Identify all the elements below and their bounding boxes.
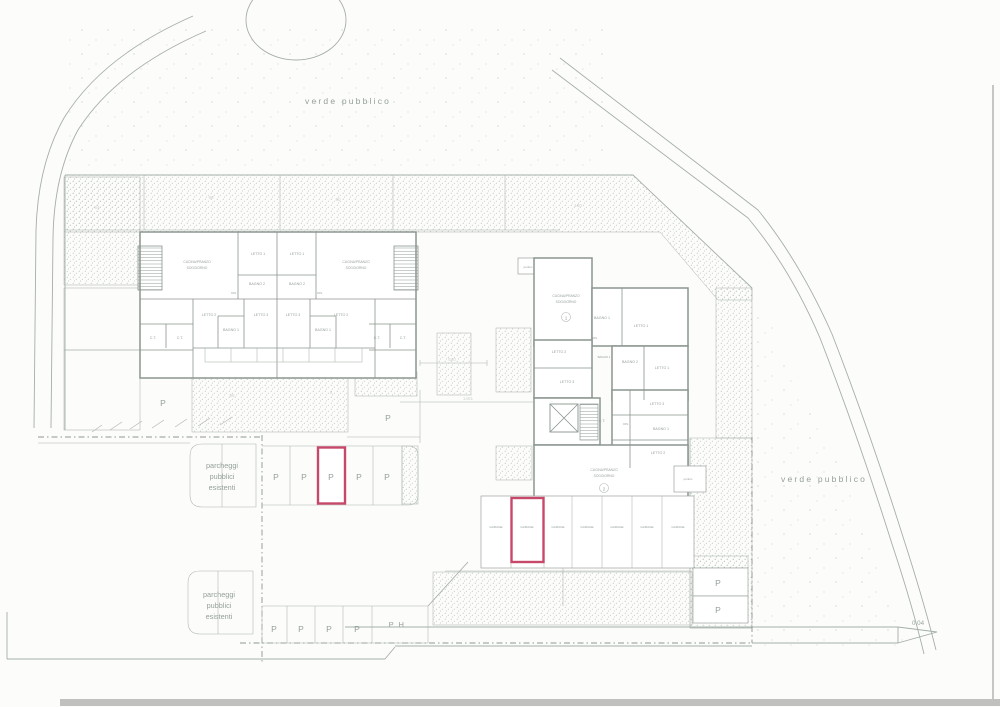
court-west-lower (64, 350, 140, 430)
parking-p-label-highlighted: P (328, 472, 334, 482)
room-label: C.T. (599, 419, 606, 423)
room-label: BAGNO 1 (594, 316, 610, 320)
room-label: SOGGIORNO (346, 266, 367, 270)
parking-p-label: P (715, 605, 721, 615)
public-parking-label-1-line3: esistenti (209, 483, 236, 492)
garden-patch-2 (437, 333, 471, 395)
room-label: LETTO 3 (286, 313, 301, 317)
room-label: DIS. (317, 291, 323, 295)
room-label: CUCINA/PRANZO (342, 260, 370, 264)
faint-number: 64 (94, 205, 100, 210)
garden-sliver-parking (402, 446, 418, 504)
room-label: LETTO 2 (651, 451, 666, 455)
garage-stall-label: GARAGE (640, 525, 653, 529)
garage-stall-label-highlighted: GARAGE (520, 525, 533, 529)
room-label: SOGGIORNO (556, 300, 577, 304)
faint-number: 6 (330, 390, 333, 395)
parking-ph-label: P H (389, 620, 406, 629)
parking-p-label: P (160, 398, 166, 408)
room-label: portico (524, 265, 533, 269)
garage-stall-label: GARAGE (551, 525, 564, 529)
parking-p-label: P (354, 624, 360, 634)
green-area-label-top: verde pubblico (305, 96, 391, 106)
room-label: LETTO 3 (650, 402, 665, 406)
faint-number: 58 (229, 393, 235, 398)
unit-2-number: 2 (603, 487, 606, 492)
parking-p-label: P (715, 578, 721, 588)
room-label: BAGNO 2 (289, 282, 305, 286)
highlighted-garage-stall (512, 498, 544, 562)
room-label: DIS. (592, 336, 598, 340)
parking-p-label: P (271, 624, 277, 634)
garage-stall-label: GARAGE (610, 525, 623, 529)
parking-p-label: P (273, 472, 279, 482)
room-label: BAGNO 1 (598, 355, 611, 359)
stairs-b (580, 404, 598, 440)
room-label: BAGNO 1 (223, 328, 239, 332)
parking-p-label: P (298, 624, 304, 634)
garden-patch-4 (496, 446, 532, 480)
room-label: CUCINA/PRANZO (590, 468, 618, 472)
stairs-east (394, 246, 418, 290)
stairs-west (138, 246, 162, 290)
room-label: LETTO 2 (552, 350, 567, 354)
parking-row-upper (262, 446, 418, 505)
room-label: BAGNO 1 (315, 328, 331, 332)
room-label: SOGGIORNO (187, 266, 208, 270)
parking-p-label: P (301, 472, 307, 482)
garage-stall-label: GARAGE (580, 525, 593, 529)
garden-patch-3 (496, 328, 531, 392)
scan-shadow-bottom (60, 699, 1000, 706)
room-label: C.T. (177, 336, 184, 340)
unit-1-number: 1 (565, 316, 568, 321)
public-parking-label-1-line1: parcheggi (206, 461, 238, 470)
parking-p-label: P (326, 624, 332, 634)
scanned-site-plan-page: verde pubblico verde pubblico parcheggi … (0, 0, 1000, 707)
public-parking-label-2-line2: pubblici (207, 601, 232, 610)
court-west-upper (64, 288, 140, 350)
room-label: LETTO 1 (634, 324, 649, 328)
parking-p-label: P (384, 472, 390, 482)
garden-court-left (192, 372, 348, 432)
garden-strip-left (64, 177, 140, 285)
garden-band-south (433, 572, 692, 625)
faint-number: 180 (574, 203, 582, 208)
parking-p-label: P (356, 472, 362, 482)
public-parking-label-2-line3: esistenti (206, 612, 233, 621)
room-label: CUCINA/PRANZO (552, 294, 580, 298)
faint-number: 500 (448, 357, 456, 362)
room-label: BAGNO 2 (249, 282, 265, 286)
garage-row (481, 496, 694, 568)
garage-stall-label: GARAGE (489, 525, 502, 529)
room-label: portico (684, 477, 693, 481)
room-label: BAGNO 1 (653, 427, 669, 431)
building-a (138, 232, 418, 378)
room-label: CUCINA/PRANZO (183, 260, 211, 264)
room-label: BAGNO 2 (622, 360, 638, 364)
room-label: LETTO 3 (254, 313, 269, 317)
room-label: LETTO 2 (202, 313, 217, 317)
garden-cell-small (693, 556, 748, 568)
green-area-label-right: verde pubblico (781, 474, 867, 484)
room-label: C.T. (374, 336, 381, 340)
room-label: C.T. (150, 336, 157, 340)
garden-strip-right-upper (716, 288, 752, 438)
room-label: SOGGIORNO (594, 474, 615, 478)
room-label: C.T. (400, 336, 407, 340)
room-label: LETTO 1 (251, 252, 266, 256)
faint-number: 1481 (463, 396, 474, 401)
parking-p-label: P (385, 413, 391, 423)
room-label: LETTO 2 (334, 313, 349, 317)
room-label: DIS. (623, 422, 629, 426)
faint-number: 50 (335, 197, 341, 202)
room-label: LETTO 1 (290, 252, 305, 256)
room-label: DIS. (231, 291, 237, 295)
room-label: LETTO 3 (560, 380, 575, 384)
faint-number: 90 (208, 195, 214, 200)
public-parking-label-2-line1: parcheggi (203, 590, 235, 599)
garage-stall-label: GARAGE (671, 525, 684, 529)
site-plan-drawing: verde pubblico verde pubblico parcheggi … (0, 0, 1000, 707)
elevation-label: 0.04 (912, 620, 925, 627)
building-b (518, 258, 706, 500)
public-parking-label-1-line2: pubblici (210, 472, 235, 481)
room-label: LETTO 1 (655, 366, 670, 370)
